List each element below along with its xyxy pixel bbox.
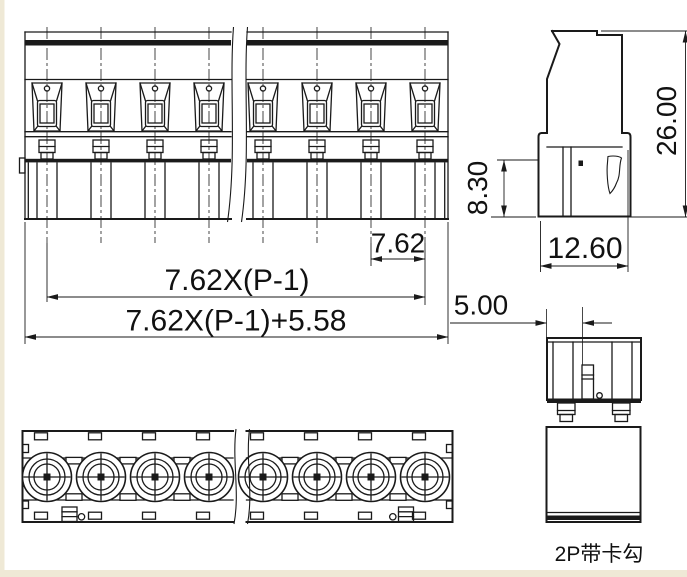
socket-outline <box>539 133 631 217</box>
mold-mark <box>579 161 584 167</box>
screw-terminal <box>239 453 288 502</box>
side-view <box>539 31 631 217</box>
break-lines-front <box>228 27 248 222</box>
screw-terminal <box>131 453 180 502</box>
pilot-hole <box>78 514 84 520</box>
screw-terminal <box>23 453 72 502</box>
dim-latch-offset: 5.00 <box>454 290 509 321</box>
top-view-left-section <box>23 431 234 522</box>
top-view-right-section <box>239 431 453 522</box>
center-lines <box>47 27 209 243</box>
dim-plug-depth: 8.30 <box>462 161 493 216</box>
screw-terminal <box>347 453 396 502</box>
pilot-hole <box>390 514 396 520</box>
latch-hook <box>607 156 621 194</box>
page-margin-bottom <box>0 570 687 577</box>
screw-terminal <box>293 453 342 502</box>
center-lines <box>263 27 425 243</box>
terminal-block-drawing: 7.62 7.62X(P-1) 7.62X(P-1)+5.58 5.00 8.3… <box>0 0 687 577</box>
dim-pitch-span: 7.62X(P-1) <box>164 264 309 297</box>
top-view <box>23 429 453 524</box>
latch-hook-top <box>582 365 594 399</box>
front-view-right-section <box>247 27 448 243</box>
screw-terminal <box>401 453 450 502</box>
dim-pole-pitch: 7.62 <box>371 228 426 259</box>
mounting-tab <box>20 158 26 173</box>
dimension-annotations: 7.62 7.62X(P-1) 7.62X(P-1)+5.58 5.00 8.3… <box>25 31 687 365</box>
plug-outline-right <box>552 31 622 133</box>
two-pole-latch-view <box>547 338 642 522</box>
screw-terminal <box>77 453 126 502</box>
page-margin-left <box>0 0 5 577</box>
screw-terminal <box>185 453 234 502</box>
front-view-left-section <box>20 27 232 243</box>
keying-detail <box>399 507 414 522</box>
solder-pins <box>558 403 631 422</box>
keying-detail <box>62 507 77 522</box>
dim-overall-height: 26.00 <box>651 86 682 156</box>
front-view <box>20 27 449 243</box>
product-label: 2P带卡勾 <box>555 543 644 566</box>
dim-body-width: 12.60 <box>547 232 622 265</box>
dim-overall-length: 7.62X(P-1)+5.58 <box>126 305 347 338</box>
plug-outline-left <box>547 31 560 133</box>
body-outline <box>547 427 641 522</box>
technical-drawing-canvas: 7.62 7.62X(P-1) 7.62X(P-1)+5.58 5.00 8.3… <box>0 0 687 577</box>
socket-slot <box>563 147 571 216</box>
